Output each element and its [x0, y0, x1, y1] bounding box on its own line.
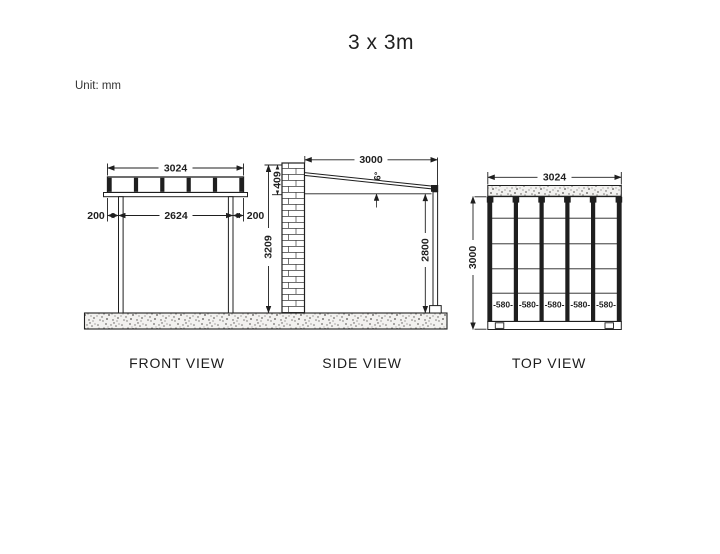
dim-bay-spacing: -580-: [519, 300, 539, 310]
side-view-label: SIDE VIEW: [322, 355, 402, 371]
ground-strip: [85, 313, 448, 329]
front-post-left: [119, 197, 124, 313]
drawing-page: 3 x 3m Unit: mm: [0, 0, 720, 554]
rafter-bar: [565, 197, 569, 321]
dim-top-overall-depth: 3000: [467, 246, 479, 270]
dim-top-overall-width: 3024: [543, 172, 567, 184]
rafter-wall-bracket: [616, 197, 623, 203]
rafter-bar: [514, 197, 518, 321]
front-fascia: [108, 177, 244, 193]
front-eave-beam: [104, 193, 248, 197]
rafter-bar: [617, 197, 621, 321]
fascia-panel-divider: [134, 178, 138, 192]
dim-front-clear-span: 2624: [164, 210, 188, 222]
top-post-foot: [605, 323, 614, 329]
fascia-panel-divider: [239, 178, 243, 192]
dim-side-roof-angle: 6°: [373, 171, 383, 180]
rafter-bar: [540, 197, 544, 321]
dim-side-post-height: 2800: [420, 238, 432, 262]
rafter-bar: [488, 197, 492, 321]
top-wall-band: [488, 186, 622, 197]
dim-side-wall-height: 3209: [263, 235, 275, 259]
fascia-panel-divider: [187, 178, 191, 192]
front-view-label: FRONT VIEW: [129, 355, 225, 371]
fascia-panel-divider: [160, 178, 164, 192]
dim-front-right-overhang: 200: [247, 210, 265, 222]
side-view-drawing: 3209 409 3000 6°: [263, 154, 442, 314]
top-front-beam: [488, 322, 622, 330]
front-view-drawing: 3024 2624 200 200: [87, 162, 264, 313]
side-brick-wall: [282, 163, 305, 313]
top-post-foot: [495, 323, 504, 329]
rafter-wall-bracket: [564, 197, 571, 203]
dim-front-left-overhang: 200: [87, 210, 105, 222]
side-post-foot: [430, 306, 442, 313]
rafter-wall-bracket: [590, 197, 597, 203]
dim-bay-spacing: -580-: [545, 300, 565, 310]
dim-side-depth: 3000: [359, 154, 383, 166]
rafter-wall-bracket: [513, 197, 520, 203]
rafter-wall-bracket: [538, 197, 545, 203]
fascia-panel-divider: [108, 178, 112, 192]
fascia-panel-divider: [213, 178, 217, 192]
top-view-label: TOP VIEW: [512, 355, 586, 371]
rafter-wall-bracket: [487, 197, 494, 203]
roof-slope-panel: [305, 173, 437, 190]
dim-front-overall-width: 3024: [164, 162, 188, 174]
roof-post-bracket: [431, 185, 438, 192]
rafter-bar: [591, 197, 595, 321]
front-post-right: [228, 197, 233, 313]
technical-drawing: 3024 2624 200 200: [0, 0, 720, 554]
dim-bay-spacing: -580-: [570, 300, 590, 310]
dim-bay-spacing: -580-: [596, 300, 616, 310]
side-post: [433, 192, 438, 313]
top-view-drawing: 3024 -5: [467, 171, 622, 330]
dim-bay-spacing: -580-: [493, 300, 513, 310]
